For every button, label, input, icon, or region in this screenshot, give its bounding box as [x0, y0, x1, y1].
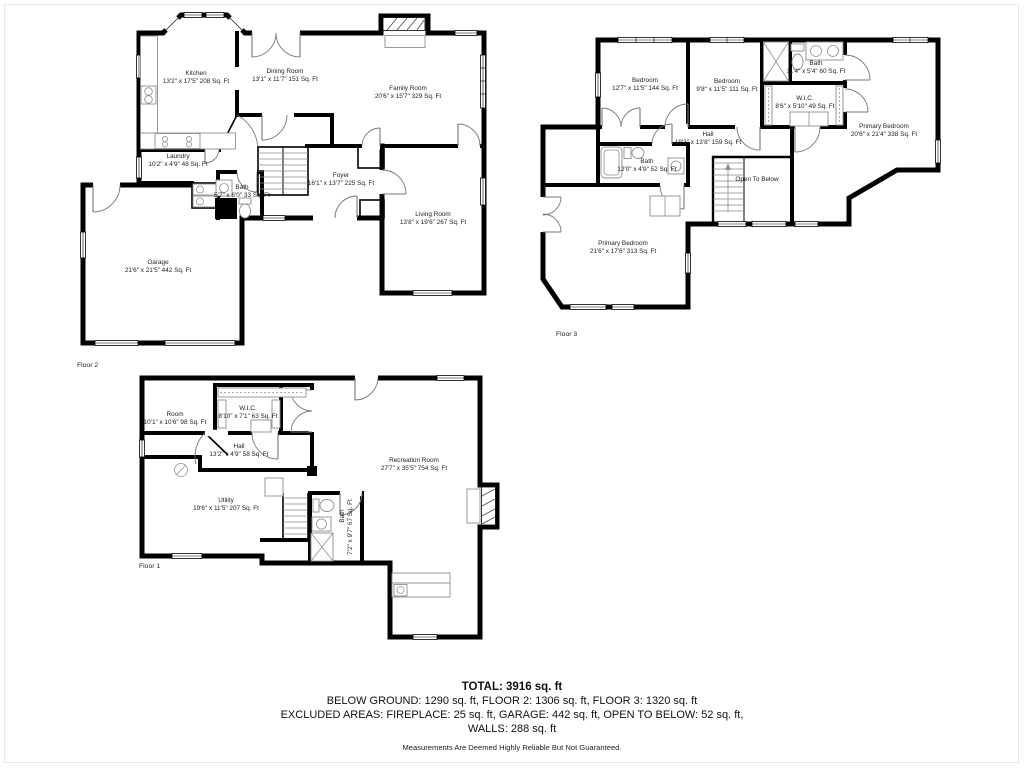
floor1-label: Floor 1 — [139, 563, 160, 570]
room-label-hall1: Hall — [233, 443, 244, 450]
room-dims-recreation: 27'7" x 35'5" 754 Sq. Ft — [381, 465, 448, 472]
room-dims-garage: 21'6" x 21'5" 442 Sq. Ft — [125, 267, 192, 274]
room-label-dining: Dining Room — [267, 68, 304, 75]
summary-floors-line: BELOW GROUND: 1290 sq. ft, FLOOR 2: 1306… — [0, 694, 1024, 708]
room-dims-wic3: 8'6" x 5'10" 49 Sq. Ft — [775, 103, 834, 110]
chimney-block — [215, 198, 237, 219]
floor1-labels: Room 10'1" x 10'6" 98 Sq. Ft W.I.C. 8'10… — [139, 405, 447, 570]
room-dims-living: 13'8" x 19'6" 267 Sq. Ft — [400, 219, 467, 226]
room-label-primary-right: Primary Bedroom — [859, 123, 909, 130]
room-dims-kitchen: 13'2" x 17'5" 208 Sq. Ft — [163, 78, 230, 85]
room-label-primary-lower: Primary Bedroom — [598, 240, 648, 247]
floor3-plan: Bedroom 12'7" x 11'5" 144 Sq. Ft Bedroom… — [543, 38, 941, 339]
room-label-open-to-below: Open To Below — [735, 176, 779, 183]
floor2-stairs — [258, 147, 308, 195]
floor2-kitchen-fixtures — [141, 36, 236, 149]
floor2-plan: Kitchen 13'2" x 17'5" 208 Sq. Ft Dining … — [77, 13, 486, 370]
room-dims-bedroom1: 12'7" x 11'5" 144 Sq. Ft — [612, 85, 678, 92]
room-label-bedroom2: Bedroom — [714, 78, 740, 85]
room-dims-utility: 19'6" x 11'5" 207 Sq. Ft — [193, 505, 259, 512]
room-dims-wic1: 8'10" x 7'1" 63 Sq. Ft — [218, 413, 277, 420]
room-dims-family: 20'6" x 15'7" 329 Sq. Ft — [375, 93, 442, 100]
support-post — [307, 466, 317, 476]
room-dims-primary-lower: 21'6" x 17'6" 313 Sq. Ft — [590, 248, 657, 255]
floor1-fireplace — [467, 487, 496, 525]
room-label-bath1: Bath — [339, 509, 346, 523]
room-dims-bath1: 7'2" x 9'7" 67 Sq. Ft — [347, 499, 354, 555]
room-label-utility: Utility — [218, 497, 234, 504]
summary-total: TOTAL: 3916 sq. ft — [0, 680, 1024, 694]
room-label-laundry: Laundry — [166, 153, 190, 160]
room-label-bath-left: Bath — [640, 158, 654, 165]
floor3-windows — [570, 38, 941, 310]
summary-disclaimer: Measurements Are Deemed Highly Reliable … — [0, 743, 1024, 752]
room-dims-bath2: 5'7" x 6'0" 33 Sq. Ft — [214, 192, 270, 199]
room-dims-bath-top: 11'4" x 5'4" 60 Sq. Ft — [787, 68, 846, 75]
room-label-bedroom1: Bedroom — [632, 77, 658, 84]
floor2-fireplace — [383, 18, 425, 48]
floorplan-page: Kitchen 13'2" x 17'5" 208 Sq. Ft Dining … — [0, 0, 1024, 768]
floor1-windows — [140, 376, 465, 640]
room-label-recreation: Recreation Room — [389, 457, 439, 464]
room-label-wic1: W.I.C. — [239, 405, 257, 412]
area-summary: TOTAL: 3916 sq. ft BELOW GROUND: 1290 sq… — [0, 680, 1024, 752]
floorplan-canvas: Kitchen 13'2" x 17'5" 208 Sq. Ft Dining … — [0, 0, 1024, 768]
floor1-bath-fixtures — [311, 499, 334, 561]
summary-excluded-line: EXCLUDED AREAS: FIREPLACE: 25 sq. ft, GA… — [0, 708, 1024, 722]
room-label-room: Room — [166, 411, 183, 418]
floor2-label: Floor 2 — [77, 362, 98, 369]
room-label-garage: Garage — [147, 259, 169, 266]
room-dims-hall3: 19'3" x 13'8" 159 Sq. Ft — [675, 139, 742, 146]
floor1-stairs — [283, 498, 308, 534]
room-label-hall3: Hall — [702, 131, 713, 138]
floor1-bar-counter — [392, 573, 450, 597]
floor2-interior-walls — [139, 33, 484, 218]
floor1-wic-fixtures — [218, 388, 306, 432]
floor3-label: Floor 3 — [556, 331, 577, 338]
room-label-bath-top: Bath — [809, 60, 823, 67]
floor1-plan: Room 10'1" x 10'6" 98 Sq. Ft W.I.C. 8'10… — [139, 376, 497, 640]
room-dims-room: 10'1" x 10'6" 98 Sq. Ft — [144, 419, 207, 426]
summary-walls-line: WALLS: 288 sq. ft — [0, 722, 1024, 736]
room-dims-laundry: 10'2" x 4'9" 48 Sq. Ft — [148, 161, 207, 168]
floor3-bath-fixtures — [764, 42, 844, 81]
room-dims-bath-left: 12'0" x 4'9" 52 Sq. Ft — [617, 166, 676, 173]
room-dims-bedroom2: 9'8" x 11'5" 111 Sq. Ft — [696, 86, 758, 93]
room-label-living: Living Room — [415, 211, 451, 218]
room-dims-primary-right: 20'6" x 21'4" 338 Sq. Ft — [851, 131, 918, 138]
room-label-kitchen: Kitchen — [185, 70, 207, 77]
room-dims-hall1: 13'2" x 4'9" 58 Sq. Ft — [209, 451, 268, 458]
floor3-primary-closet — [650, 196, 680, 216]
room-label-wic3: W.I.C. — [796, 95, 814, 102]
room-label-foyer: Foyer — [333, 172, 350, 179]
room-label-family: Family Room — [389, 85, 427, 92]
floor3-stairs — [713, 163, 744, 212]
room-dims-foyer: 16'1" x 13'7" 225 Sq. Ft — [308, 180, 375, 187]
room-label-bath2: Bath — [235, 184, 249, 191]
room-dims-dining: 13'1" x 11'7" 151 Sq. Ft — [252, 76, 318, 83]
